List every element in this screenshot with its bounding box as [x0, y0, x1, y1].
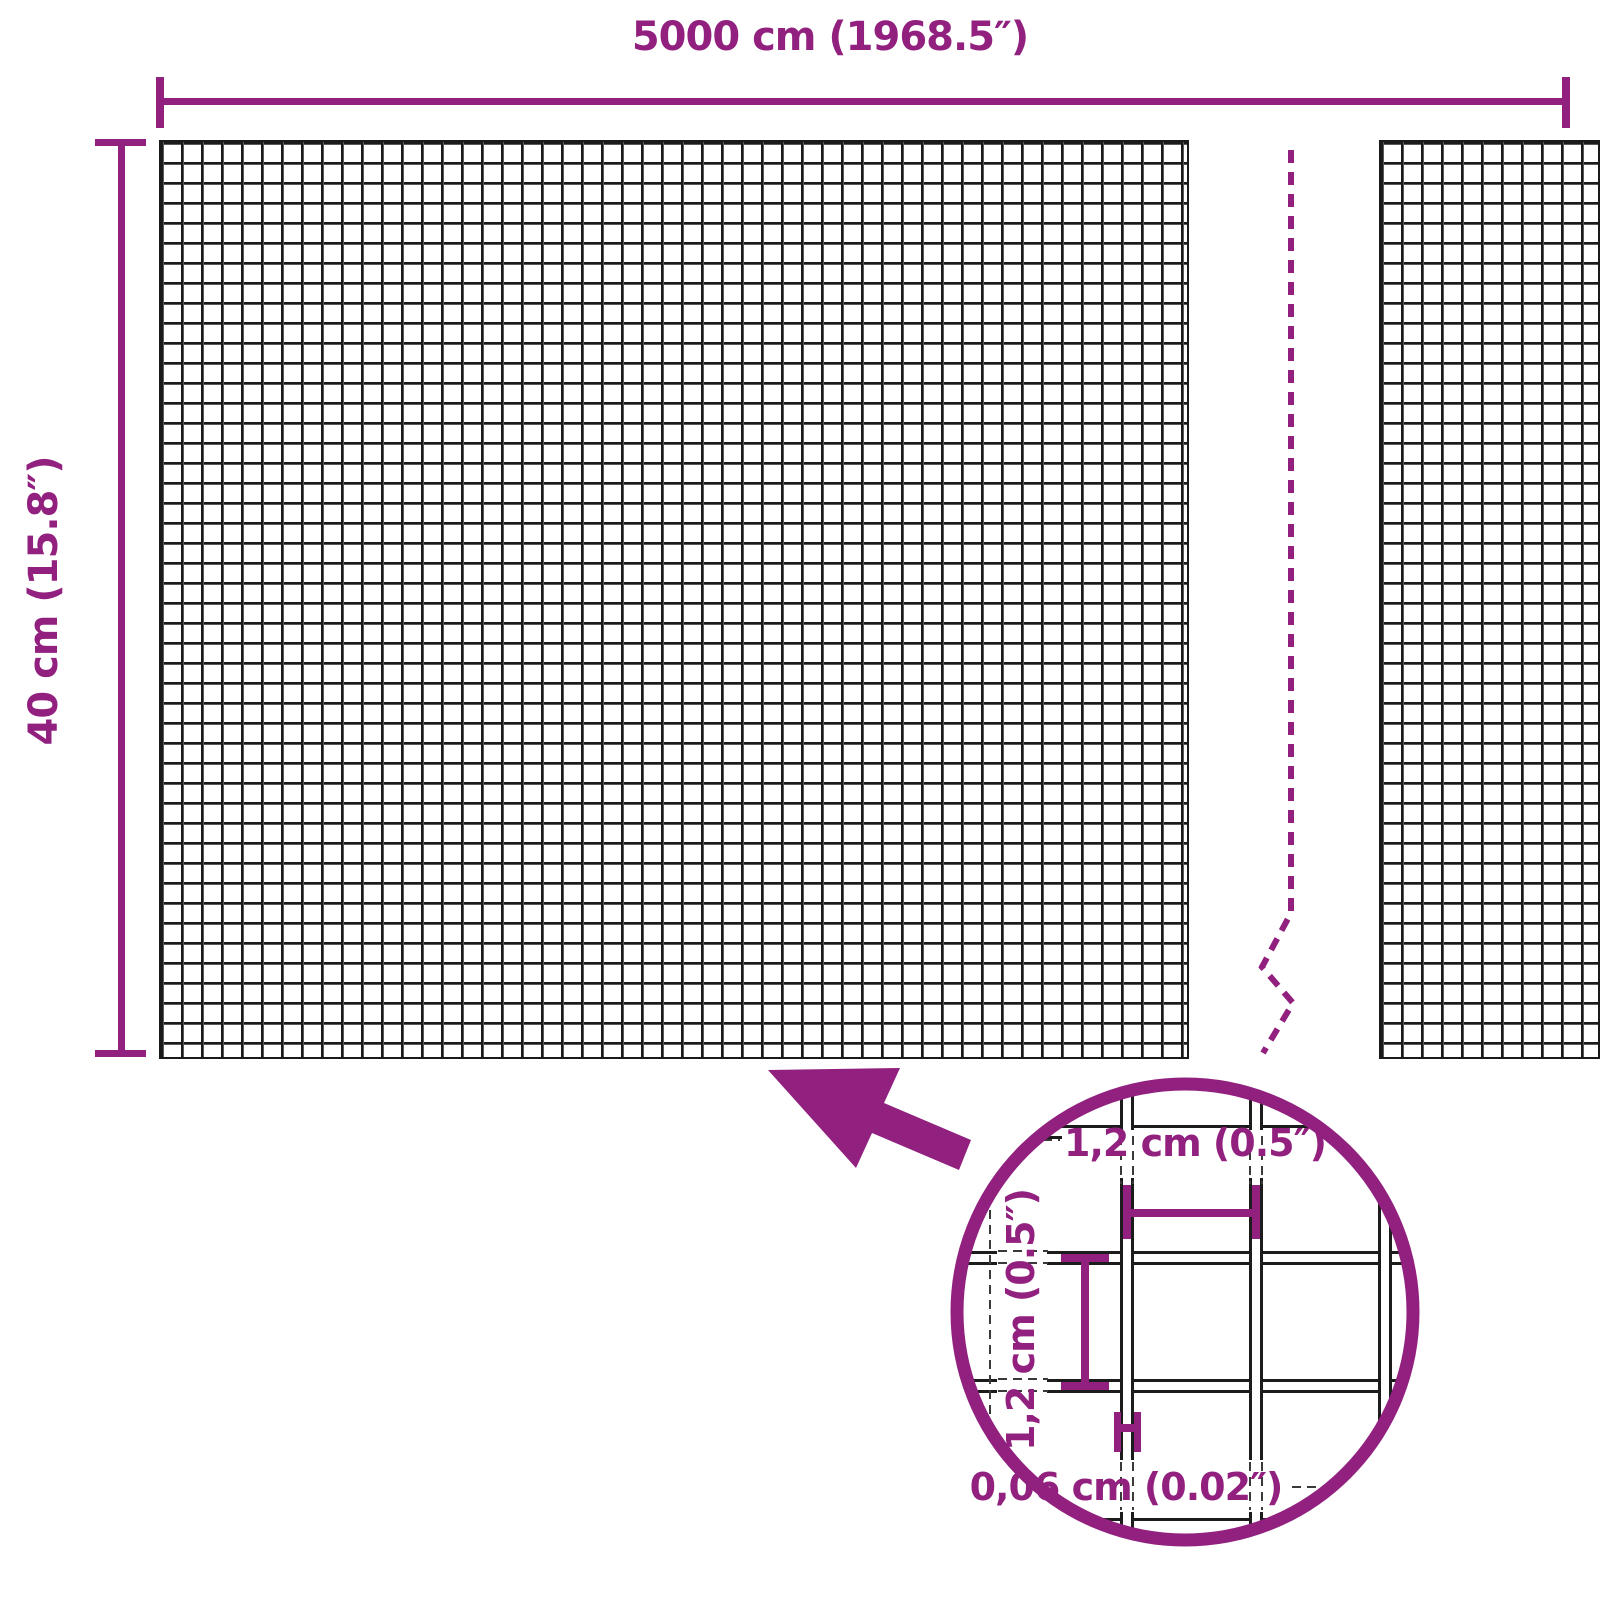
opening-width-label: 1,2 cm (0.5″)	[1064, 1121, 1326, 1165]
zoom-arrow-icon	[768, 1068, 971, 1170]
height-dimension-line	[95, 139, 146, 1057]
width-dimension-line	[156, 77, 1570, 128]
product-dimension-diagram: 5000 cm (1968.5″) 40 cm (15.8″) 1,2 cm (…	[0, 0, 1600, 1600]
wire-thickness-label: 0,06 cm (0.02″)	[970, 1465, 1283, 1509]
roll-height-label: 40 cm (15.8″)	[21, 456, 67, 745]
roll-width-label: 5000 cm (1968.5″)	[632, 14, 1028, 60]
opening-height-label: 1,2 cm (0.5″)	[999, 1189, 1043, 1451]
diagram-overlay	[0, 0, 1600, 1600]
break-line	[1262, 150, 1293, 1053]
